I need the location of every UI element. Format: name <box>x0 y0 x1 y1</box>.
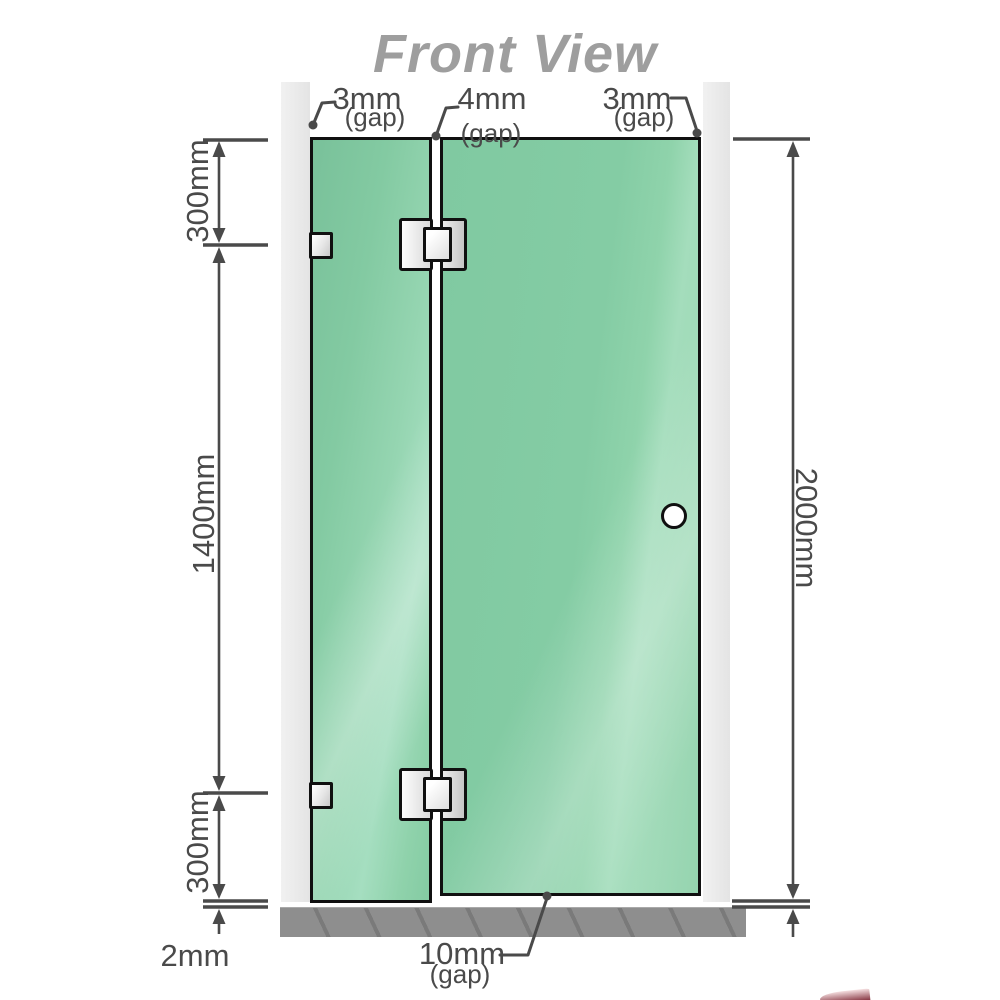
leader-lines <box>313 98 697 955</box>
gap-label-top-middle-suffix: (gap) <box>446 120 536 146</box>
dimension-label-left-top: 300mm <box>182 126 214 256</box>
gap-label-bottom-suffix: (gap) <box>410 961 510 987</box>
dimension-label-left-bottom: 300mm <box>182 777 214 907</box>
floor-gap-label: 2mm <box>145 940 245 971</box>
gap-label-top-right-suffix: (gap) <box>599 104 689 130</box>
dimension-overlay <box>0 0 1000 1000</box>
leader-dots <box>309 121 702 901</box>
gap-label-top-left-suffix: (gap) <box>330 104 420 130</box>
dimension-label-left-middle: 1400mm <box>188 439 220 589</box>
front-view-diagram: Front View <box>0 0 1000 1000</box>
dimension-label-right-total: 2000mm <box>790 448 822 608</box>
gap-label-top-middle-value: 4mm <box>447 83 537 114</box>
